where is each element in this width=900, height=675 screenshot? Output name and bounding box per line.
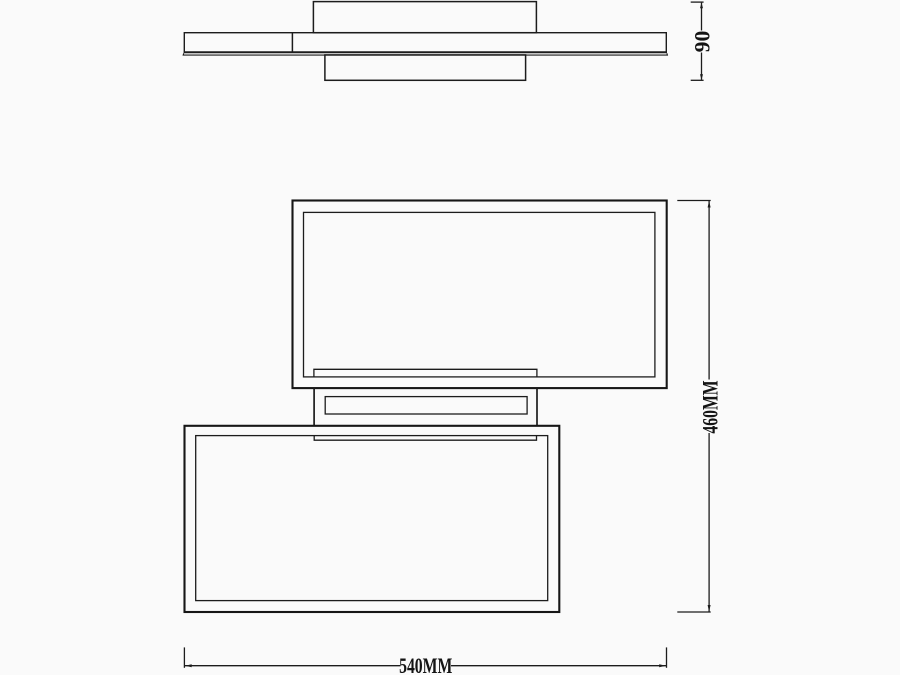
- svg-text:90: 90: [690, 31, 714, 53]
- svg-text:460MM: 460MM: [699, 380, 723, 433]
- svg-text:540MM: 540MM: [399, 654, 452, 675]
